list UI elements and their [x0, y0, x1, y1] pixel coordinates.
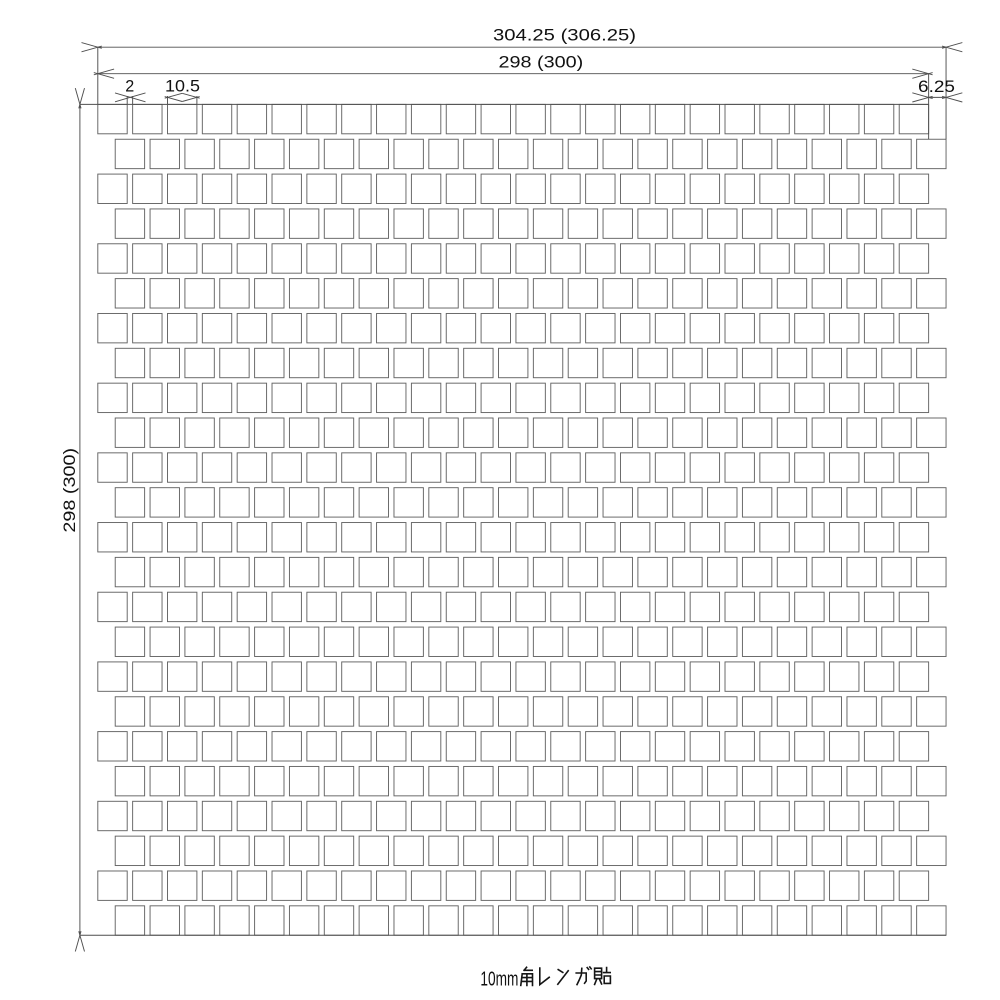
svg-text:6.25: 6.25 — [918, 77, 955, 96]
svg-text:298 (300): 298 (300) — [499, 53, 584, 72]
svg-text:2: 2 — [125, 77, 134, 96]
svg-text:10mm: 10mm — [480, 967, 518, 990]
svg-text:298 (300): 298 (300) — [60, 448, 79, 533]
svg-text:304.25 (306.25): 304.25 (306.25) — [493, 26, 636, 45]
svg-text:10.5: 10.5 — [165, 77, 200, 96]
